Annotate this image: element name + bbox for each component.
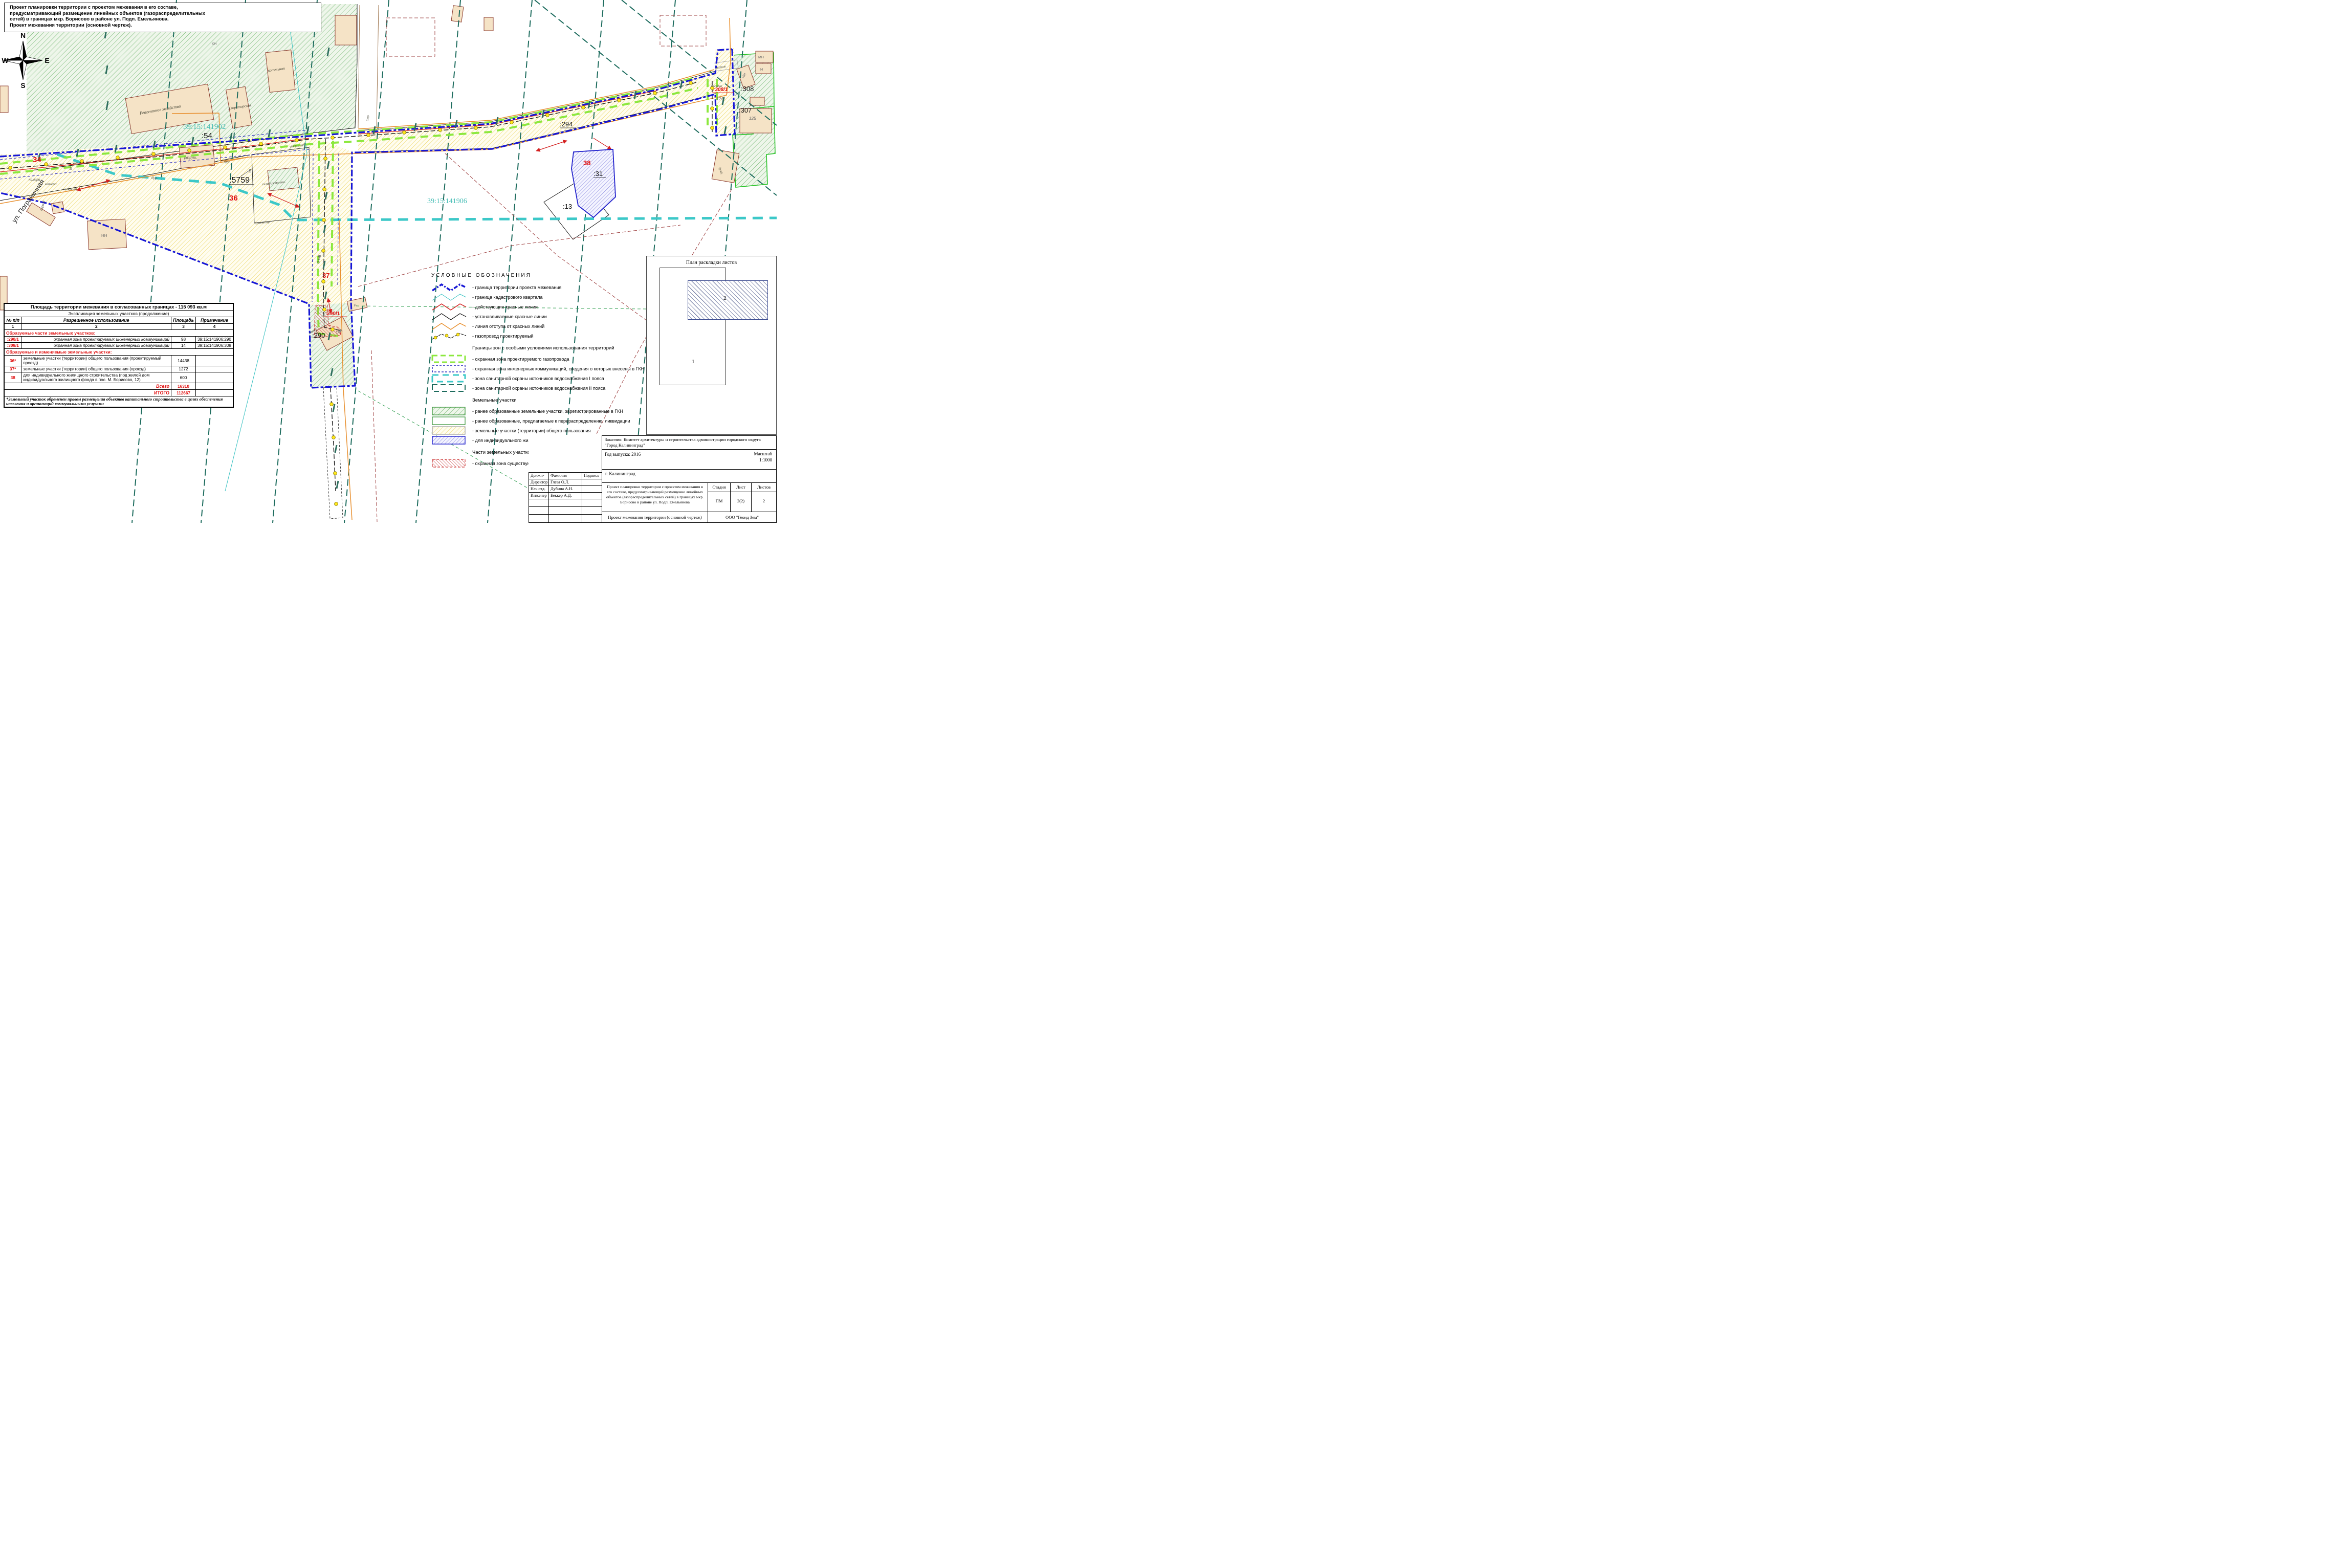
utilities-protection-symbol	[431, 458, 467, 468]
v-label-1: В	[70, 166, 73, 171]
legend-label: - граница кадастрового квартала	[472, 295, 542, 300]
scale-value: 1:1000	[759, 457, 772, 462]
parcel-308-label: :308	[741, 85, 754, 93]
red-line-offset-symbol	[431, 321, 467, 331]
stage-header: Стадия	[708, 482, 731, 492]
grand-total-row: ИТОГО 112667	[4, 390, 233, 396]
sheet-2-number: 2	[723, 295, 727, 301]
staff-empty	[548, 506, 582, 515]
col-header: № п/п	[4, 317, 21, 324]
table-title: Площадь территории межевания в согласова…	[4, 303, 233, 311]
table-row: 38 для индивидуального жилищного строите…	[4, 372, 233, 383]
col-number: 1	[4, 324, 21, 330]
parcel-num-cell: 36*	[4, 356, 21, 366]
parcel-num-cell: 38	[4, 372, 21, 383]
parcel-num-cell: 37*	[4, 366, 21, 372]
legend-label: - зона санитарной охраны источников водо…	[472, 376, 604, 381]
staff-role: Нач.отд.	[529, 485, 549, 493]
staff-role: Инженер	[529, 492, 549, 499]
house-12a-label: 12А	[716, 97, 723, 101]
stage-value: ПМ	[708, 492, 731, 512]
building-ne-green	[335, 15, 357, 45]
note-cell	[195, 372, 233, 383]
project-boundary-symbol	[431, 282, 467, 292]
nn-label-2: НН	[101, 233, 107, 238]
building-edge-1	[0, 86, 8, 113]
staff-signature	[582, 492, 602, 499]
col-header: Разрешенное использование	[21, 317, 171, 324]
water-zone-1-symbol	[431, 373, 467, 383]
grand-total-label: ИТОГО	[4, 390, 171, 396]
legend-label: - газопровод проектируемый	[472, 334, 534, 339]
staff-role: Директор	[529, 479, 549, 486]
closed-well-label: закрыт	[64, 187, 77, 191]
parcel-307-label: :307	[739, 106, 752, 114]
staff-empty	[582, 514, 602, 523]
redistribution-symbol	[431, 416, 467, 426]
title-note-line: Проект межевания территории (основной че…	[10, 23, 316, 29]
note-cell: 39:15:141906:290	[195, 337, 233, 343]
legend-label: - зона санитарной охраны источников водо…	[472, 386, 605, 391]
sheet-plan-title: План раскладки листов	[647, 260, 776, 266]
parcel-290-1-label: :290/1	[325, 311, 340, 317]
staff-name-header: Фамилия	[548, 472, 582, 479]
staff-empty	[582, 506, 602, 515]
sheets-header: Листов	[751, 482, 777, 492]
parcel-37-number: 37	[322, 272, 329, 279]
area-cell: 600	[171, 372, 196, 383]
section-header: Образуемые и изменяемые земельные участк…	[4, 349, 233, 356]
area-cell: 14	[171, 343, 196, 349]
new-red-lines-symbol	[431, 312, 467, 321]
table-row: :290/1 охранная зона проектируемых инжен…	[4, 337, 233, 343]
cadastral-quarter-symbol	[431, 292, 467, 302]
bpr-label: б.пр.	[366, 114, 370, 121]
house-12b-label: 12Б	[749, 116, 756, 121]
city-cell: г. Калининград	[602, 469, 777, 483]
quarter-1906-label: 39:15:141906	[427, 197, 467, 205]
sheet-2-outline	[688, 280, 768, 320]
compass-east: E	[45, 56, 49, 64]
customer-cell: Заказчик: Комитет архитектуры и строител…	[602, 435, 777, 450]
note-cell: 39:15:141906:308	[195, 343, 233, 349]
section-header: Образуемые части земельных участков:	[4, 330, 233, 337]
building-n-right	[756, 63, 771, 74]
staff-sign-header: Подпись	[582, 472, 602, 479]
gkn-utilities-zone-symbol	[431, 364, 467, 373]
staff-empty	[529, 499, 549, 507]
registered-gkn-symbol	[431, 406, 467, 416]
legend-label: - действующие красные линии	[472, 304, 538, 310]
utility-strip-south	[323, 387, 343, 519]
building-ruined-label: разруш.	[184, 155, 197, 160]
compass-south: S	[20, 81, 25, 90]
individual-housing-symbol	[431, 435, 467, 445]
explication-table: Площадь территории межевания в согласова…	[4, 303, 234, 408]
area-cell: 1272	[171, 366, 196, 372]
compass-north: N	[20, 31, 26, 39]
use-cell: земельные участки (территории) общего по…	[21, 366, 171, 372]
quarter-1902-label: 39:15:141902	[183, 123, 226, 131]
n-label-1: Н	[760, 68, 763, 72]
area-cell: 14438	[171, 356, 196, 366]
sheets-value: 2	[751, 492, 777, 512]
table-subtitle: Экспликация земельных участков (продолже…	[4, 311, 233, 317]
drawing-canvas: 39:15:141902 :54 39:15:141906 :5759 :294…	[0, 0, 777, 523]
chamber-label-2: камера	[45, 182, 57, 186]
staff-name: Глеза О.Л.	[548, 479, 582, 486]
water-zone-2-symbol	[431, 383, 467, 393]
use-cell: охранная зона проектируемых инженерных к…	[21, 343, 171, 349]
existing-red-lines-symbol	[431, 302, 467, 312]
v-label-2: В	[249, 169, 252, 173]
parcel-num-cell: :290/1	[4, 337, 21, 343]
col-number: 2	[21, 324, 171, 330]
parcel-36-number: 36	[229, 194, 238, 203]
parcel-13-label: :13	[563, 203, 572, 210]
kn-label: КН	[212, 42, 216, 46]
col-number: 4	[195, 324, 233, 330]
parcel-38-number: 38	[583, 159, 590, 167]
gas-pipeline-symbol	[431, 331, 467, 341]
table-row: :308/1 охранная зона проектируемых инжен…	[4, 343, 233, 349]
legend-label: - ранее образованные, предлагаемые к пер…	[472, 418, 630, 424]
building-top-2	[484, 17, 493, 31]
project-description-cell: Проект планировки территории с проектом …	[602, 482, 708, 512]
sheet-header: Лист	[730, 482, 752, 492]
title-block: Заказчик: Комитет архитектуры и строител…	[529, 435, 777, 523]
parcel-5759-label: :5759	[229, 176, 250, 185]
gazebo-label: беседка	[711, 84, 722, 88]
use-cell: охранная зона проектируемых инженерных к…	[21, 337, 171, 343]
legend-label: - охранная зона инженерных коммуникаций,…	[472, 366, 644, 371]
col-header: Примечание	[195, 317, 233, 324]
staff-empty	[548, 514, 582, 523]
parcel-num-cell: :308/1	[4, 343, 21, 349]
common-use-symbol	[431, 426, 467, 435]
parcel-34-number: 34	[33, 156, 41, 164]
table-footnote: *Земельный участок обременен правом разм…	[4, 396, 233, 408]
title-note-line: сетей) в границах мкр. Борисово в районе…	[10, 16, 316, 23]
staff-name: Беккер А.Д.	[548, 492, 582, 499]
total-row: Всего 16310	[4, 383, 233, 390]
table-row: 36* земельные участки (территории) общег…	[4, 356, 233, 366]
staff-empty	[529, 514, 549, 523]
parcel-31-label: :31	[594, 170, 603, 178]
table-header-row: № п/п Разрешенное использование Площадь …	[4, 317, 233, 324]
note-cell	[195, 356, 233, 366]
title-note-line: предусматривающий размещение линейных об…	[10, 11, 316, 17]
staff-signature	[582, 479, 602, 486]
year-label: Год выпуска: 2016	[605, 452, 641, 457]
table-colnum-row: 1 2 3 4	[4, 324, 233, 330]
chamber-label-1: камера	[29, 177, 40, 182]
legend-label: - ранее образованные земельные участки, …	[472, 409, 623, 414]
legend-label: - линия отступа от красных линий	[472, 324, 544, 329]
note-cell	[195, 366, 233, 372]
borehole-label-2: бур.	[224, 159, 231, 164]
sheet-1-number: 1	[692, 359, 695, 365]
area-cell: 98	[171, 337, 196, 343]
staff-empty	[529, 506, 549, 515]
use-cell: для индивидуального жилищного строительс…	[21, 372, 171, 383]
borehole-label-1: бур.	[151, 175, 158, 180]
staff-empty	[548, 499, 582, 507]
compass-west: W	[2, 56, 9, 64]
year-scale-cell: Год выпуска: 2016 Масштаб 1:1000	[602, 449, 777, 470]
staff-empty	[582, 499, 602, 507]
title-note-line: Проект планировки территории с проектом …	[10, 5, 316, 11]
building-n-308	[750, 97, 764, 105]
company-cell: ООО "Геоид Зем"	[708, 512, 777, 523]
legend-label: - земельные участки (территории) общего …	[472, 428, 591, 433]
building-sklad	[268, 167, 299, 191]
staff-name: Дубина А.Н.	[548, 485, 582, 493]
col-header: Площадь	[171, 317, 196, 324]
scale-caption: Масштаб	[754, 451, 772, 456]
staff-role-header: Должн-ть	[529, 472, 549, 479]
table-row: 37* земельные участки (территории) общег…	[4, 366, 233, 372]
mn-label: МН	[758, 56, 764, 59]
parcel-294-label: :294	[560, 120, 573, 128]
parcel-54-label: :54	[202, 131, 212, 140]
total-value: 16310	[171, 383, 196, 390]
title-note: Проект планировки территории с проектом …	[4, 3, 321, 32]
legend-label: - охранная зона проектируемого газопрово…	[472, 357, 569, 362]
staff-signature	[582, 485, 602, 493]
sheet-value: 2(2)	[730, 492, 752, 512]
legend-label: - устанавливаемые красные линии	[472, 314, 547, 319]
grand-total-value: 112667	[171, 390, 196, 396]
total-label: Всего	[4, 383, 171, 390]
use-cell: земельные участки (территории) общего по…	[21, 356, 171, 366]
scale-label: Масштаб 1:1000	[754, 451, 772, 463]
building-top-1	[451, 6, 464, 22]
legend-label: - граница территории проекта межевания	[472, 285, 561, 290]
sheet-layout-plan: План раскладки листов 1 2	[646, 256, 777, 435]
doc-title-cell: Проект межевания территории (основной че…	[602, 512, 708, 523]
col-number: 3	[171, 324, 196, 330]
gas-protection-zone-symbol	[431, 354, 467, 364]
